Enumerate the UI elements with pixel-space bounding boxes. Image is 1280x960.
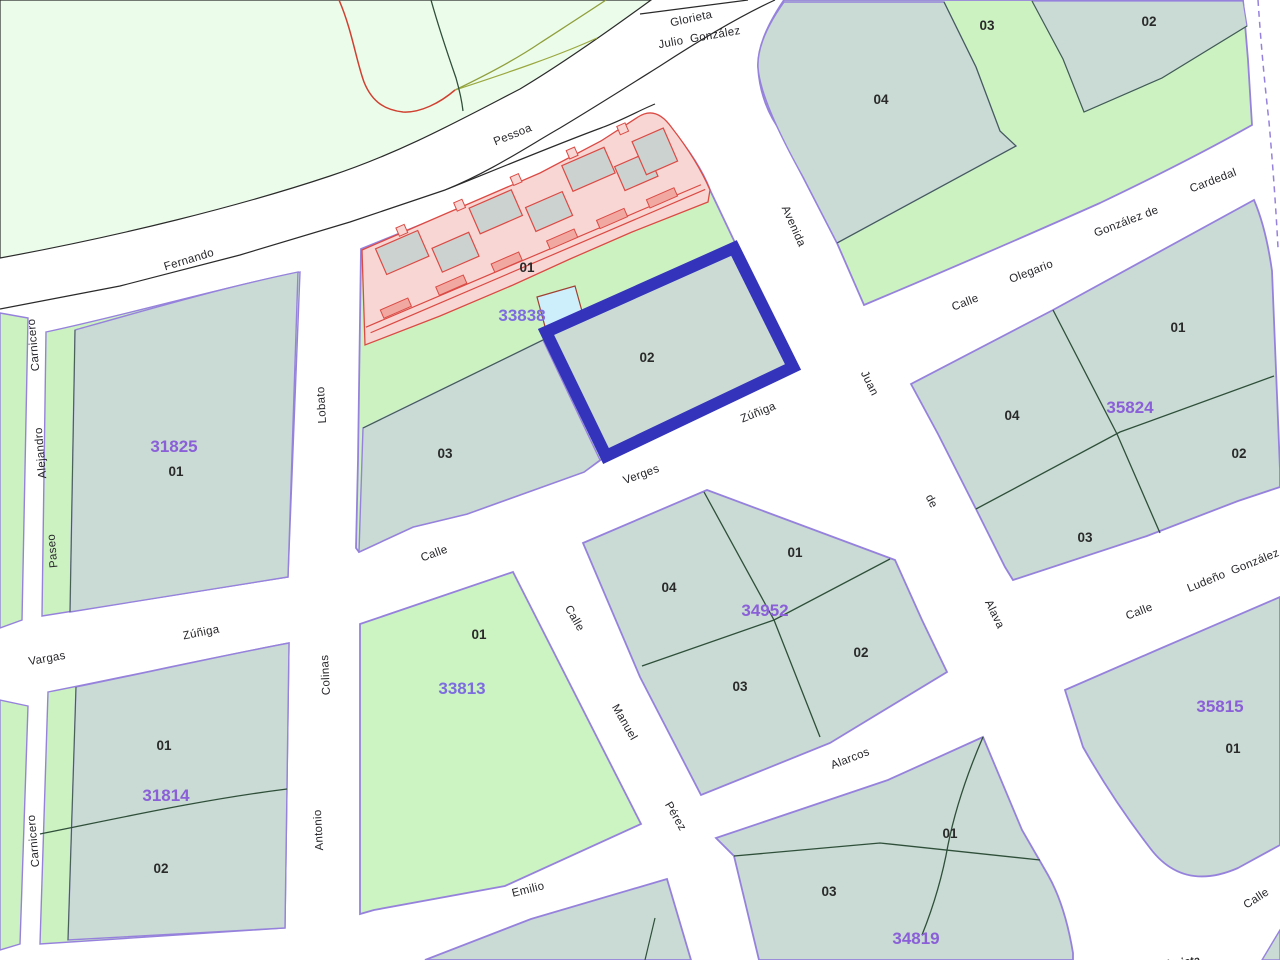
svg-text:03: 03 (437, 446, 453, 461)
svg-text:03: 03 (979, 18, 995, 33)
svg-text:03: 03 (732, 679, 748, 694)
svg-text:01: 01 (1225, 741, 1241, 756)
svg-text:02: 02 (153, 861, 168, 876)
svg-text:01: 01 (1170, 320, 1186, 335)
svg-text:Antonio: Antonio (312, 809, 326, 851)
svg-text:02: 02 (639, 350, 654, 365)
svg-text:31825: 31825 (150, 437, 197, 456)
svg-text:Lobato: Lobato (315, 386, 329, 424)
svg-text:04: 04 (661, 580, 677, 595)
svg-text:35815: 35815 (1196, 697, 1243, 716)
svg-text:01: 01 (519, 260, 535, 275)
svg-text:01: 01 (168, 464, 184, 479)
svg-text:35824: 35824 (1106, 398, 1154, 417)
svg-text:33813: 33813 (438, 679, 485, 698)
svg-text:34952: 34952 (741, 601, 788, 620)
svg-text:02: 02 (853, 645, 868, 660)
svg-text:02: 02 (1231, 446, 1246, 461)
svg-text:01: 01 (942, 826, 958, 841)
svg-text:01: 01 (156, 738, 172, 753)
svg-text:Colinas: Colinas (319, 654, 333, 695)
svg-text:01: 01 (787, 545, 803, 560)
svg-text:31814: 31814 (142, 786, 190, 805)
svg-text:03: 03 (821, 884, 837, 899)
svg-text:01: 01 (471, 627, 487, 642)
svg-text:02: 02 (1141, 14, 1156, 29)
svg-text:04: 04 (873, 92, 889, 107)
svg-text:03: 03 (1077, 530, 1093, 545)
svg-text:33838: 33838 (498, 306, 545, 325)
svg-text:04: 04 (1004, 408, 1020, 423)
svg-text:34819: 34819 (892, 929, 939, 948)
